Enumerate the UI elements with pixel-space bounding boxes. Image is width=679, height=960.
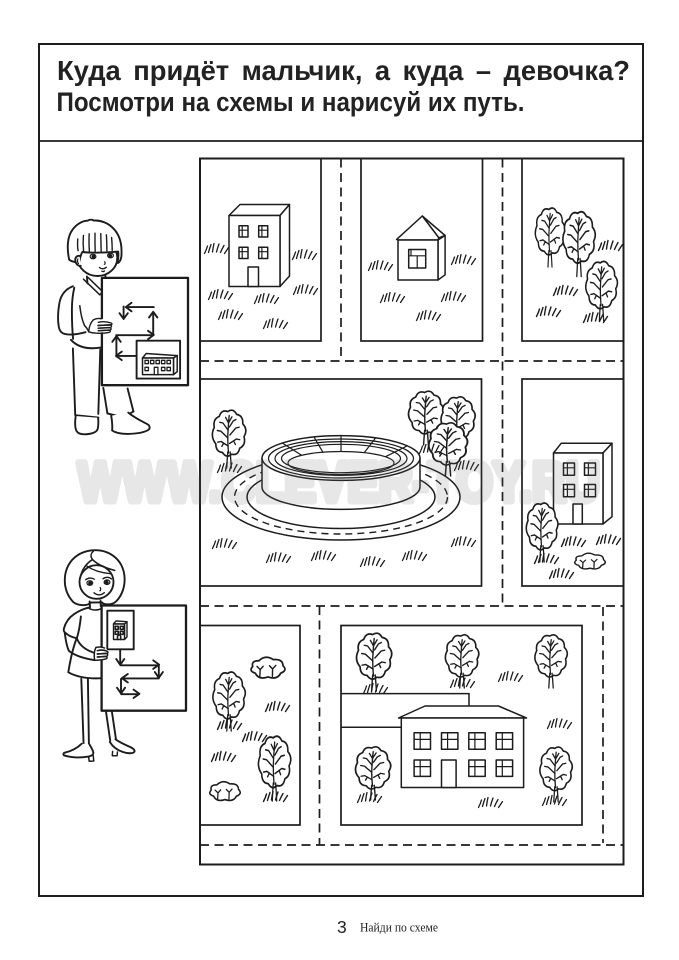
svg-text:Куда придёт мальчик, а куда –: Куда придёт мальчик, а куда – девочка? <box>57 55 630 86</box>
svg-text:Посмотри на схемы и нарисуй их: Посмотри на схемы и нарисуй их путь. <box>57 87 525 117</box>
svg-text:WWW.CLEVER-TOY.RU: WWW.CLEVER-TOY.RU <box>78 450 600 513</box>
svg-text:Найди по схеме: Найди по схеме <box>360 920 438 935</box>
svg-text:3: 3 <box>337 917 347 937</box>
